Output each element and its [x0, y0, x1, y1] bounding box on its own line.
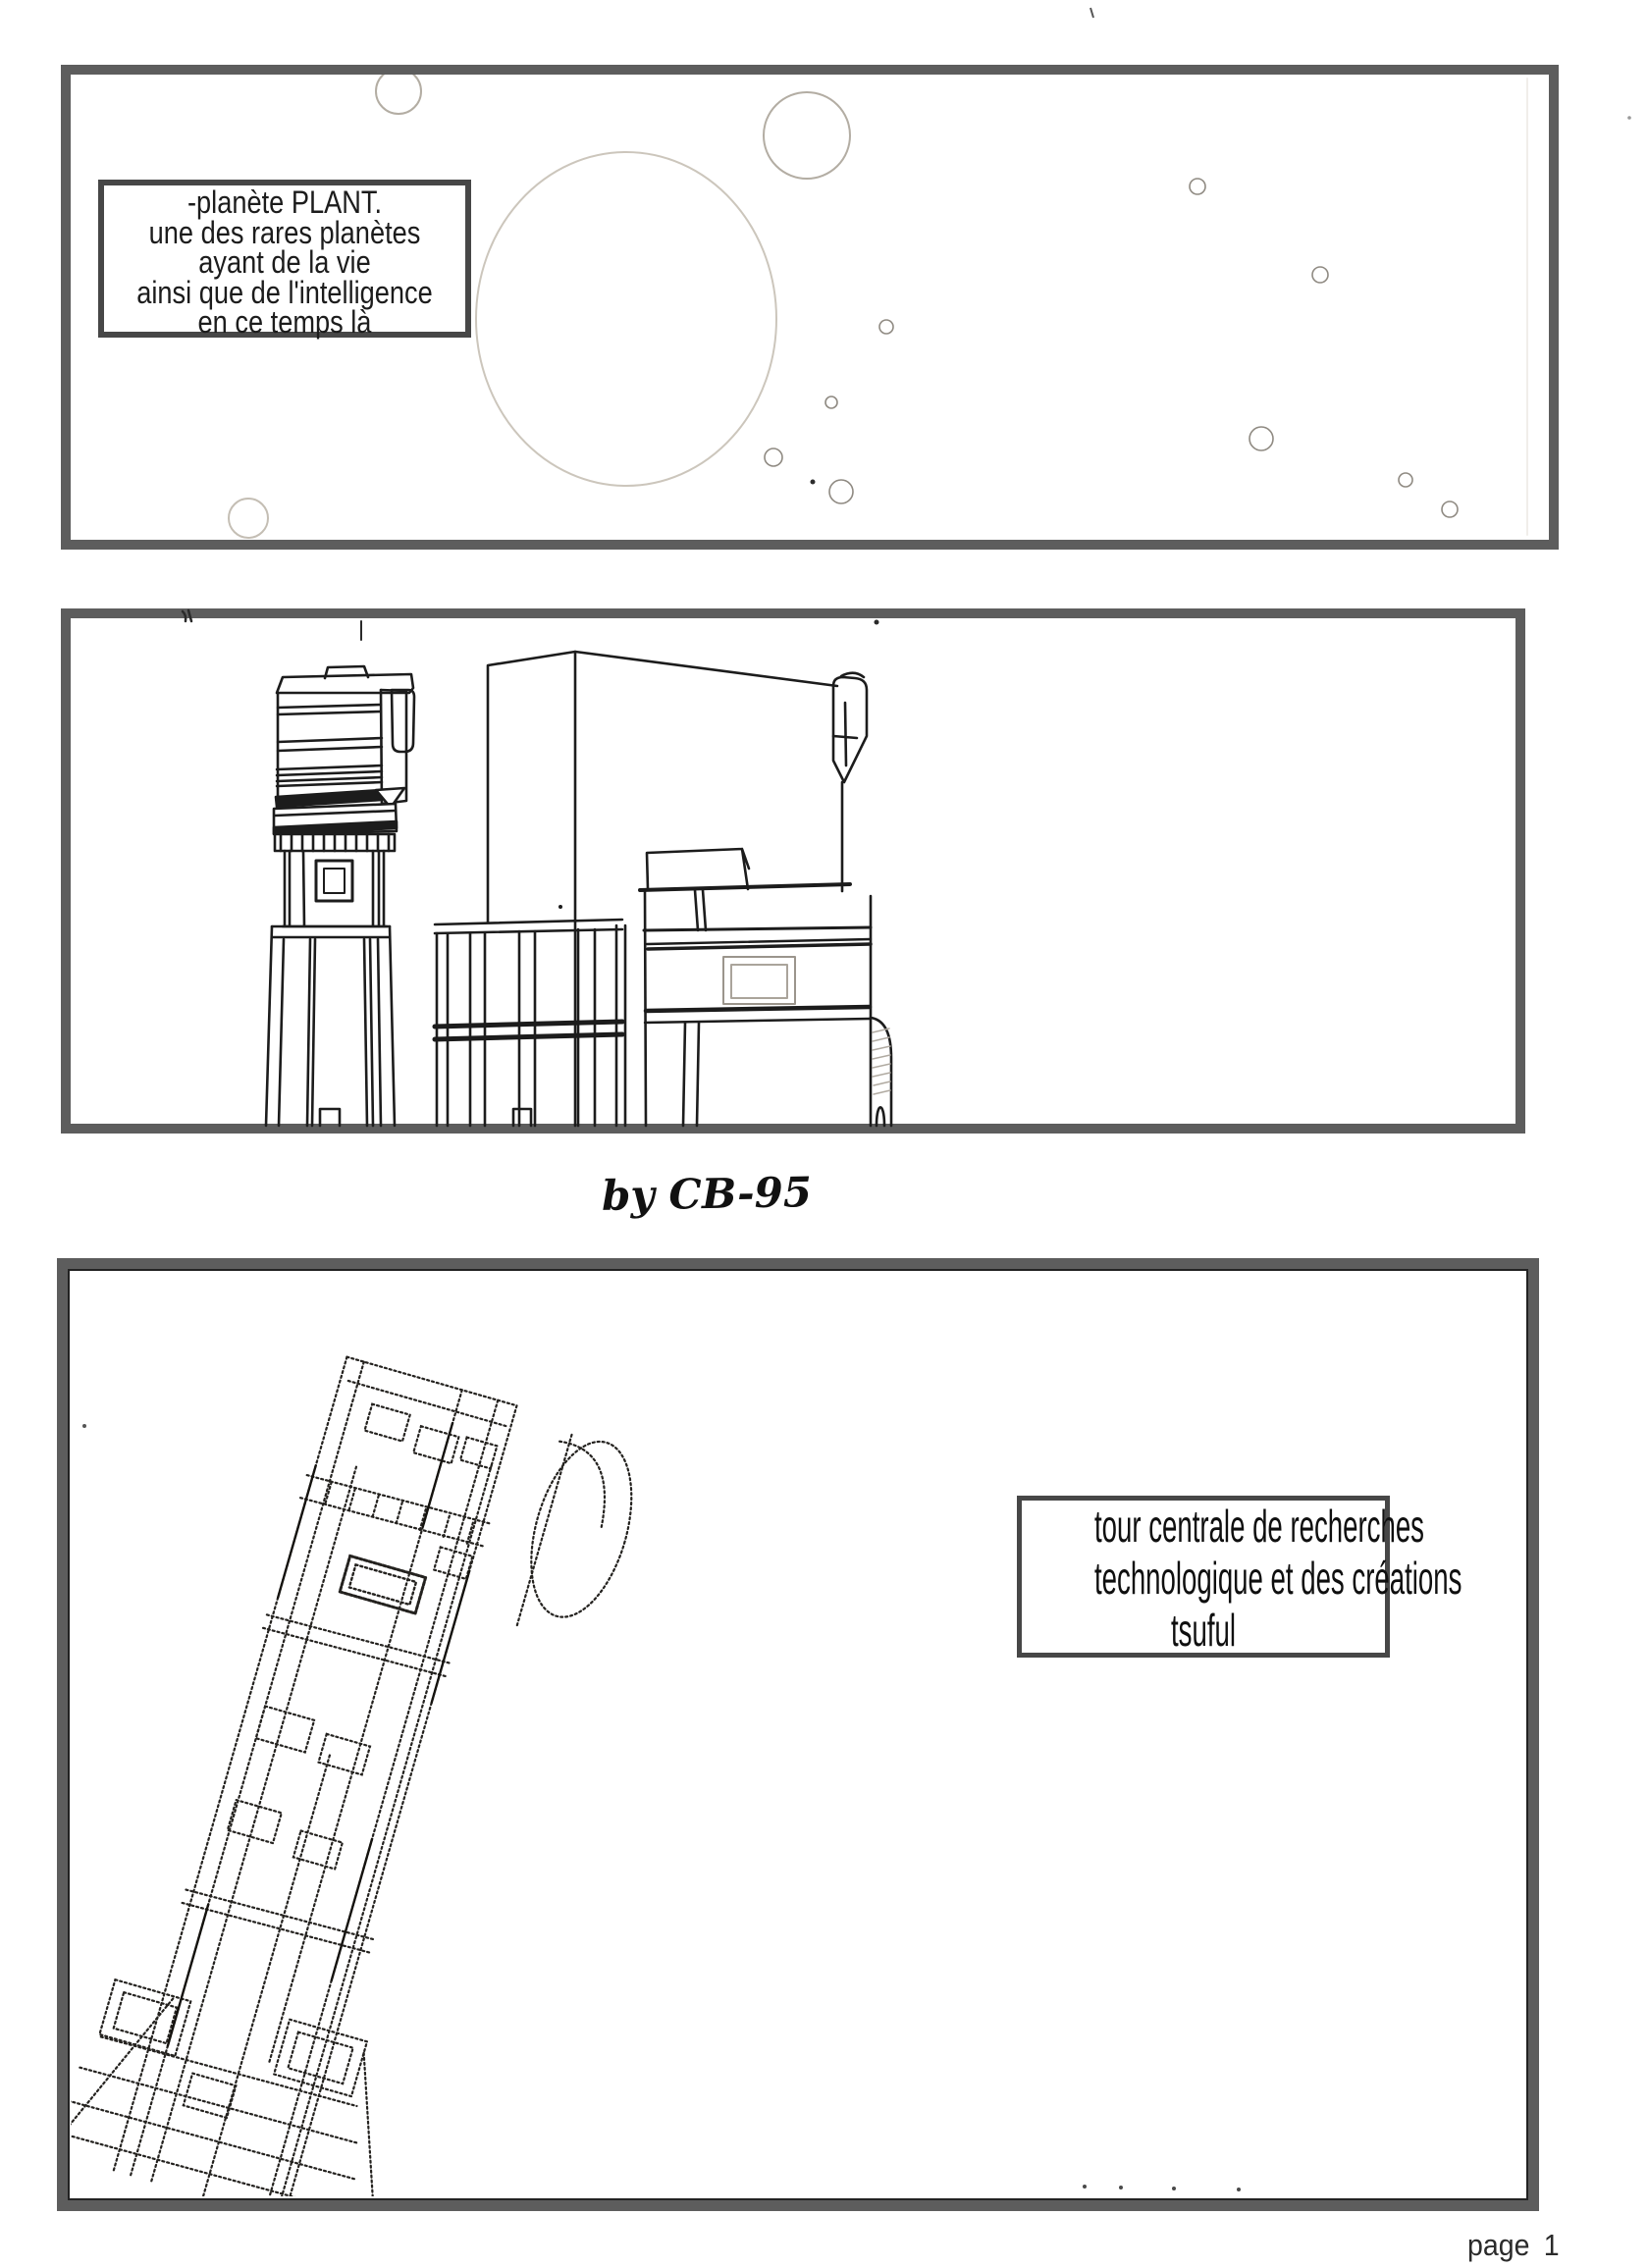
panel-machines	[61, 608, 1525, 1134]
artist-credit: by CB-95	[599, 1168, 816, 1220]
caption-line: tsuful	[1094, 1605, 1312, 1657]
caption-line: -planète PLANT.	[132, 187, 439, 218]
caption-line: tour centrale de recherches	[1094, 1501, 1312, 1553]
caption-text: -planète PLANT. une des rares planètes a…	[132, 185, 439, 338]
caption-text: tour centrale de recherches technologiqu…	[1094, 1501, 1312, 1657]
caption-line: une des rares planètes	[132, 218, 439, 248]
panel-research-tower	[57, 1258, 1539, 2211]
caption-planet-box: -planète PLANT. une des rares planètes a…	[98, 180, 471, 338]
caption-line: ayant de la vie	[132, 247, 439, 278]
page-number: page 1	[1467, 2228, 1560, 2263]
caption-line: en ce temps là	[132, 307, 439, 338]
comic-page: -planète PLANT. une des rares planètes a…	[0, 0, 1648, 2268]
caption-line: ainsi que de l'intelligence	[132, 278, 439, 308]
caption-tower-box: tour centrale de recherches technologiqu…	[1017, 1496, 1390, 1658]
caption-line: technologique et des créations	[1094, 1553, 1312, 1605]
